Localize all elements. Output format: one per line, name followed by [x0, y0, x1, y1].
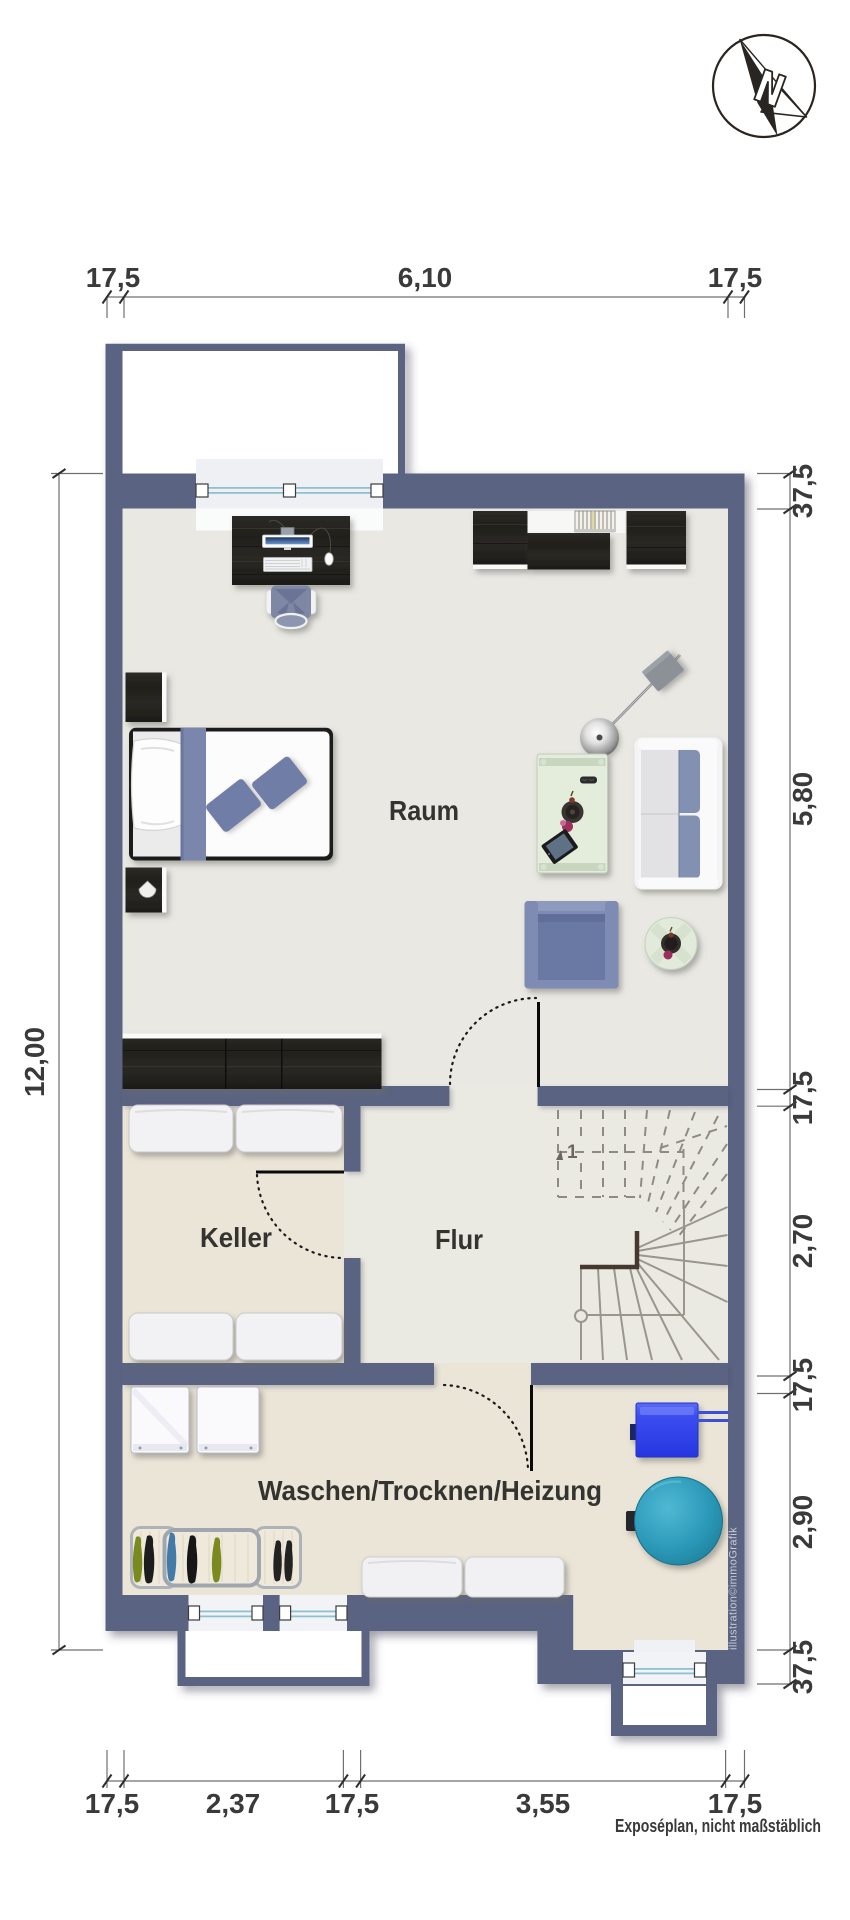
- svg-text:illustration©immoGrafik: illustration©immoGrafik: [728, 1527, 740, 1650]
- svg-text:17,5: 17,5: [325, 1788, 380, 1819]
- svg-text:2,37: 2,37: [206, 1788, 261, 1819]
- svg-text:Exposéplan, nicht maßstäblich: Exposéplan, nicht maßstäblich: [615, 1815, 821, 1836]
- svg-text:3,55: 3,55: [516, 1788, 571, 1819]
- svg-text:37,5: 37,5: [787, 464, 818, 519]
- svg-text:37,5: 37,5: [787, 1640, 818, 1695]
- svg-text:17,5: 17,5: [85, 1788, 140, 1819]
- svg-text:Raum: Raum: [389, 795, 459, 826]
- svg-text:2,70: 2,70: [787, 1214, 818, 1269]
- svg-text:12,00: 12,00: [19, 1027, 50, 1097]
- svg-text:5,80: 5,80: [787, 772, 818, 827]
- svg-text:17,5: 17,5: [787, 1071, 818, 1126]
- svg-text:1: 1: [567, 1142, 578, 1163]
- svg-text:2,90: 2,90: [787, 1495, 818, 1550]
- svg-text:Flur: Flur: [435, 1224, 483, 1255]
- svg-text:17,5: 17,5: [708, 262, 763, 293]
- svg-text:17,5: 17,5: [86, 262, 141, 293]
- svg-text:Keller: Keller: [200, 1222, 272, 1253]
- svg-text:Waschen/Trocknen/Heizung: Waschen/Trocknen/Heizung: [258, 1475, 602, 1506]
- svg-text:17,5: 17,5: [787, 1358, 818, 1413]
- svg-text:6,10: 6,10: [398, 262, 453, 293]
